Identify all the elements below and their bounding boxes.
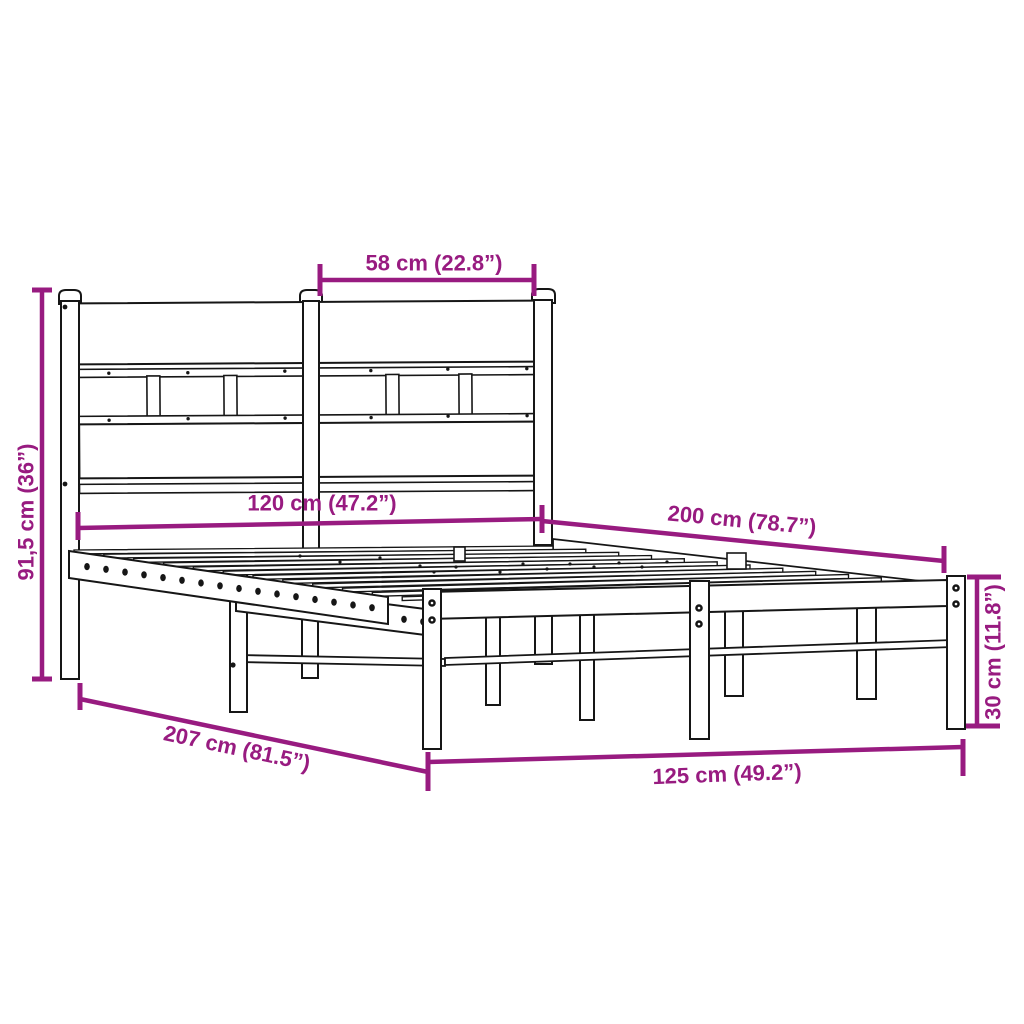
svg-text:30 cm (11.8”): 30 cm (11.8”) (981, 584, 1006, 720)
svg-text:120 cm (47.2”): 120 cm (47.2”) (247, 491, 396, 516)
svg-text:91,5 cm (36”): 91,5 cm (36”) (14, 444, 39, 581)
svg-text:125 cm (49.2”): 125 cm (49.2”) (652, 759, 802, 789)
svg-text:58 cm (22.8”): 58 cm (22.8”) (366, 251, 503, 276)
